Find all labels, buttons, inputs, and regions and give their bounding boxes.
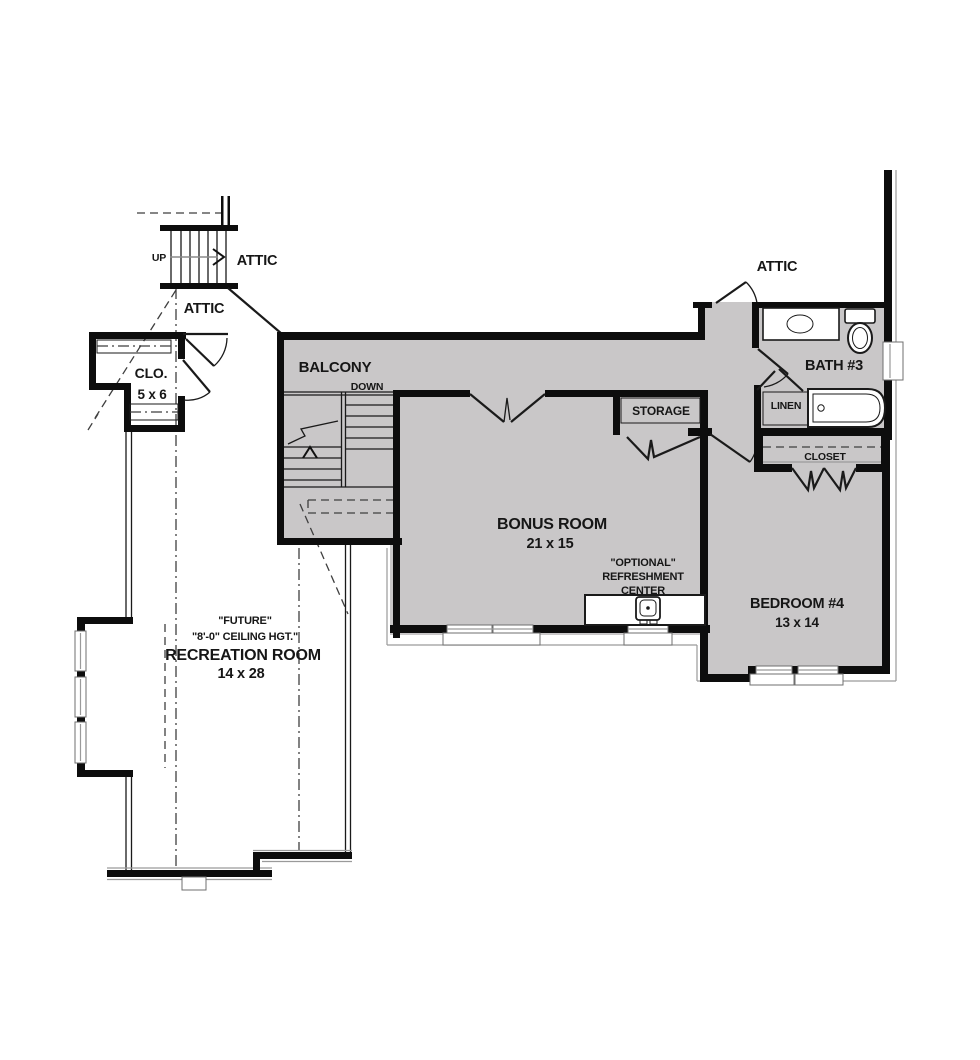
up-label: UP	[152, 252, 166, 264]
window-sill	[443, 633, 540, 645]
down-label: DOWN	[351, 381, 383, 393]
floor-plan-page: UP ATTIC ATTIC ATTIC CLO. 5 x 6 BALCONY …	[0, 0, 980, 1060]
bath-window	[883, 342, 903, 380]
recreation-label: RECREATION ROOM	[165, 647, 321, 664]
foundation-notch	[182, 877, 206, 890]
bathtub-icon	[808, 389, 885, 427]
clo-dimensions: 5 x 6	[137, 387, 167, 402]
bath-label: BATH #3	[805, 358, 863, 374]
bedroom-label: BEDROOM #4	[750, 596, 844, 612]
window-sill	[795, 674, 843, 685]
linen-label: LINEN	[771, 400, 802, 412]
clo-door-arc	[184, 392, 210, 400]
window-sill	[624, 633, 672, 645]
toilet-icon	[845, 309, 875, 353]
window-sill	[750, 674, 794, 685]
recreation-line1: "FUTURE"	[218, 615, 271, 627]
bedroom-dimensions: 13 x 14	[775, 615, 819, 630]
door-arc	[214, 338, 227, 366]
clo-label: CLO.	[135, 365, 168, 381]
attic-upper-left-label: ATTIC	[237, 253, 278, 269]
storage-label: STORAGE	[632, 404, 690, 418]
hall-top-door	[183, 334, 228, 366]
door-leaf	[186, 339, 214, 366]
recreation-line2: "8'-0" CEILING HGT."	[192, 631, 298, 643]
bonus-room-dimensions: 21 x 15	[527, 536, 574, 552]
recreation-dimensions: 14 x 28	[218, 666, 265, 682]
floor-plan-drawing: UP ATTIC ATTIC ATTIC CLO. 5 x 6 BALCONY …	[0, 0, 980, 1060]
balcony-label: BALCONY	[299, 359, 372, 376]
clo-door-leaf	[183, 360, 210, 392]
refreshment-line3: CENTER	[621, 585, 665, 597]
clo-closet	[89, 332, 210, 432]
bonus-room-label: BONUS ROOM	[497, 516, 607, 533]
refreshment-line1: "OPTIONAL"	[610, 557, 675, 569]
vanity-counter	[763, 308, 839, 340]
bay-window	[75, 617, 133, 777]
attic-right-label: ATTIC	[757, 259, 798, 275]
refreshment-line2: REFRESHMENT	[602, 571, 684, 583]
attic-lower-left-label: ATTIC	[184, 301, 225, 317]
closet-label: CLOSET	[804, 451, 846, 463]
refreshment-center-counter	[585, 595, 705, 625]
attic-access-door	[716, 282, 757, 303]
sink-icon	[636, 597, 660, 624]
